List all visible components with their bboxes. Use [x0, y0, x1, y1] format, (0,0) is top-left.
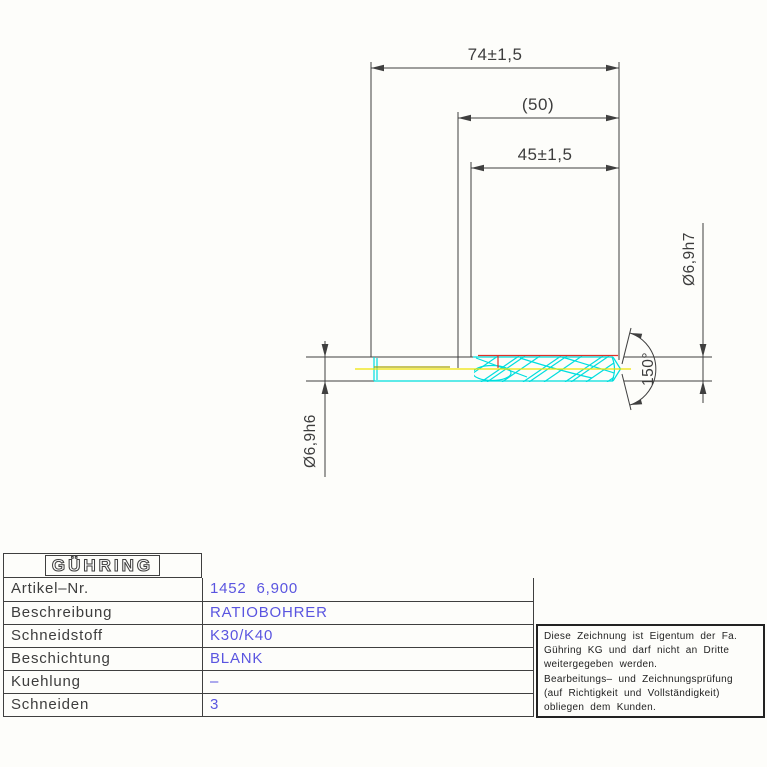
row-value: BLANK	[203, 648, 533, 670]
drill-body	[355, 356, 645, 383]
logo-box: GÜHRING	[3, 553, 202, 578]
table-row: Schneiden 3	[4, 693, 533, 716]
title-block-table: Artikel–Nr. 1452 6,900 Beschreibung RATI…	[3, 578, 534, 717]
dim-overall-length-label: 74±1,5	[468, 45, 523, 64]
dim-tip-diameter-label: Ø6,9h7	[681, 232, 698, 286]
drawing-canvas: 74±1,5 (50) 45±1,5 Ø6,9h7	[0, 0, 767, 767]
table-row: Beschichtung BLANK	[4, 647, 533, 670]
row-label: Schneidstoff	[4, 625, 203, 647]
disclaimer-line: Diese Zeichnung ist Eigentum der Fa.	[544, 630, 758, 644]
row-value: RATIOBOHRER	[203, 602, 533, 624]
disclaimer-line: Bearbeitungs– und Zeichnungsprüfung	[544, 673, 758, 687]
dim-overall-length: 74±1,5	[371, 45, 619, 360]
dim-ref-length-label: (50)	[522, 95, 554, 114]
table-row: Kuehlung –	[4, 670, 533, 693]
disclaimer-line: weitergegeben werden.	[544, 658, 758, 672]
logo-frame: GÜHRING	[45, 555, 160, 576]
row-label: Artikel–Nr.	[4, 578, 203, 601]
table-row: Schneidstoff K30/K40	[4, 624, 533, 647]
disclaimer-line: (auf Richtigkeit und Vollständigkeit)	[544, 687, 758, 701]
table-row: Beschreibung RATIOBOHRER	[4, 601, 533, 624]
row-label: Kuehlung	[4, 671, 203, 693]
row-value: K30/K40	[203, 625, 533, 647]
disclaimer-line: obliegen dem Kunden.	[544, 701, 758, 715]
technical-drawing: 74±1,5 (50) 45±1,5 Ø6,9h7	[0, 0, 767, 548]
dim-point-angle-label: 150°	[640, 352, 657, 386]
dim-shank-diameter: Ø6,9h6	[302, 341, 473, 477]
dim-tip-diameter: Ø6,9h7	[624, 223, 712, 403]
dim-ref-length: (50)	[458, 95, 619, 368]
dim-shank-diameter-label: Ø6,9h6	[302, 414, 319, 468]
disclaimer-line: Gühring KG und darf nicht an Dritte	[544, 644, 758, 658]
row-label: Schneiden	[4, 694, 203, 716]
table-row: Artikel–Nr. 1452 6,900	[4, 578, 533, 601]
row-label: Beschichtung	[4, 648, 203, 670]
dim-flute-length-label: 45±1,5	[518, 145, 573, 164]
guehring-logo: GÜHRING	[52, 556, 153, 575]
row-value: 3	[203, 694, 533, 716]
row-value: –	[203, 671, 533, 693]
row-label: Beschreibung	[4, 602, 203, 624]
disclaimer-box: Diese Zeichnung ist Eigentum der Fa. Güh…	[536, 624, 765, 718]
row-value: 1452 6,900	[203, 578, 533, 601]
dim-flute-length: 45±1,5	[471, 145, 619, 357]
